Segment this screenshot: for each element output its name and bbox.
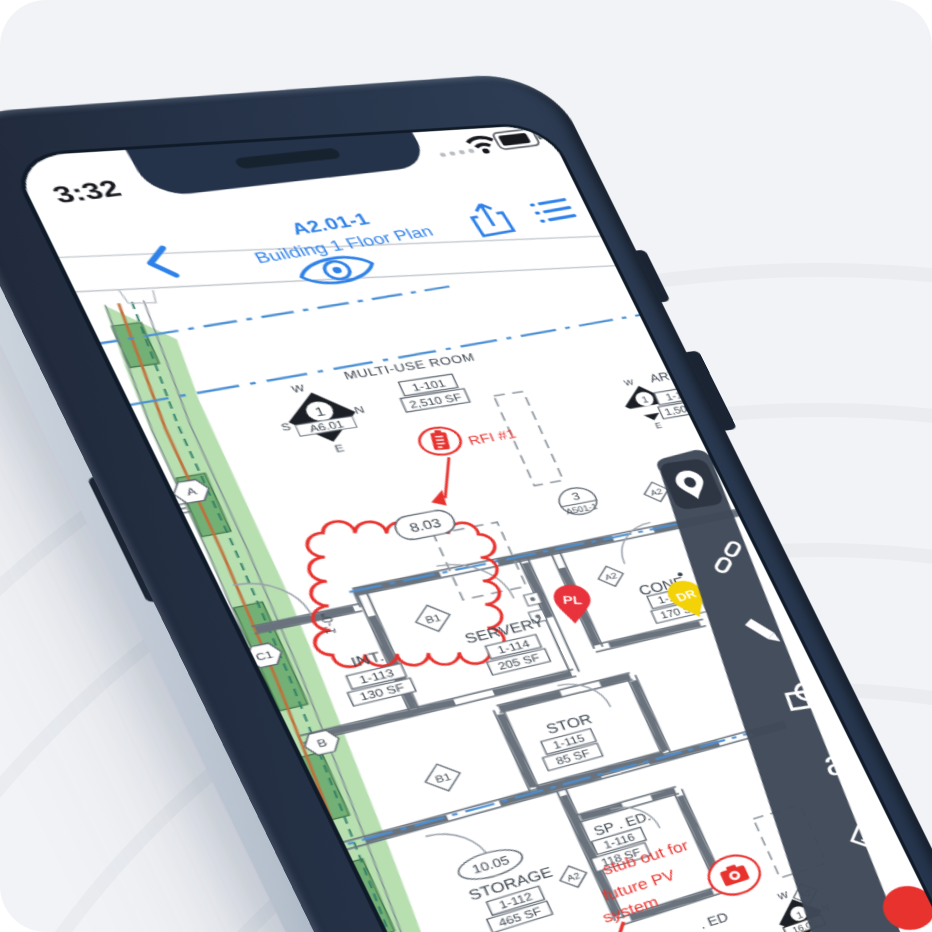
svg-text:RFI #1: RFI #1: [466, 427, 519, 448]
svg-text:. ED: . ED: [697, 910, 730, 932]
svg-text:W: W: [776, 889, 791, 902]
svg-text:N: N: [352, 404, 366, 416]
svg-text:PL: PL: [562, 594, 583, 607]
svg-text:E: E: [654, 421, 664, 430]
svg-text:E: E: [332, 442, 346, 455]
svg-text:W: W: [289, 382, 306, 395]
svg-text:W: W: [623, 378, 636, 388]
